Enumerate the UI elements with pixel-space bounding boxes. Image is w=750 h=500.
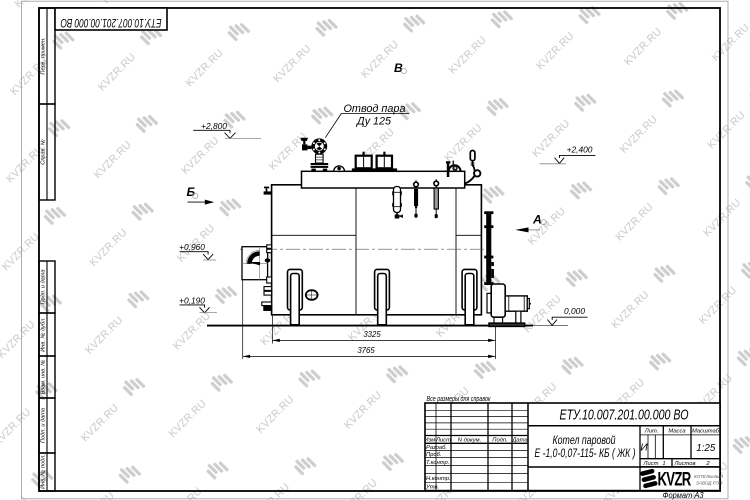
svg-text:Е -1,0-0,07-115- КБ ( ЖК ): Е -1,0-0,07-115- КБ ( ЖК ): [535, 446, 636, 460]
svg-text:Справ. №: Справ. №: [41, 139, 47, 164]
svg-text:В: В: [394, 61, 403, 75]
svg-text:Лист: Лист: [435, 437, 451, 443]
svg-text:N докум.: N докум.: [458, 437, 481, 443]
svg-text:Изм.: Изм.: [424, 437, 436, 443]
svg-text:Подп. и дата: Подп. и дата: [41, 408, 47, 443]
svg-text:KVZR: KVZR: [658, 470, 692, 491]
svg-text:Подп. и дата: Подп. и дата: [41, 269, 47, 304]
svg-text:1:25: 1:25: [696, 443, 716, 454]
svg-text:3325: 3325: [363, 330, 381, 339]
svg-text:Лит.: Лит.: [644, 429, 659, 435]
svg-text:Утв.: Утв.: [425, 485, 439, 491]
svg-text:Масштаб: Масштаб: [692, 429, 720, 435]
svg-text:ЗАВОД РЭП: ЗАВОД РЭП: [696, 481, 723, 486]
svg-text:+2,800: +2,800: [201, 121, 227, 131]
svg-text:Инв. № подл.: Инв. № подл.: [41, 454, 47, 489]
svg-text:Б: Б: [187, 185, 196, 199]
svg-text:1: 1: [662, 461, 665, 467]
svg-text:ЕТУ.10.007.201.00.000 ВО: ЕТУ.10.007.201.00.000 ВО: [560, 407, 689, 424]
svg-text:Инв. № дубл.: Инв. № дубл.: [41, 317, 47, 351]
svg-text:0,000: 0,000: [564, 306, 585, 316]
svg-text:+2,400: +2,400: [567, 145, 593, 155]
svg-text:Разраб.: Разраб.: [426, 445, 447, 451]
svg-text:Ду 125: Ду 125: [356, 116, 392, 128]
svg-text:Листов: Листов: [673, 461, 695, 467]
svg-text:Лист: Лист: [643, 461, 659, 467]
svg-text:Дата: Дата: [511, 437, 528, 443]
svg-text:+0,190: +0,190: [179, 295, 205, 305]
svg-text:Проб.: Проб.: [426, 452, 442, 458]
svg-text:И: И: [640, 443, 648, 454]
svg-text:ЕТУ.10.007.201.00.000 ВО: ЕТУ.10.007.201.00.000 ВО: [60, 16, 161, 28]
svg-text:Подп.: Подп.: [492, 437, 507, 443]
svg-text:Котел паровой: Котел паровой: [553, 433, 616, 447]
svg-text:Масса: Масса: [668, 429, 686, 435]
svg-text:Перв. примен.: Перв. примен.: [41, 37, 47, 74]
svg-text:Все размеры для справок: Все размеры для справок: [427, 394, 491, 403]
svg-text:Формат А3: Формат А3: [663, 491, 705, 500]
svg-text:А: А: [532, 212, 542, 226]
svg-text:3765: 3765: [357, 346, 375, 355]
svg-text:+0,960: +0,960: [179, 242, 205, 252]
svg-text:Взам. инв. №: Взам. инв. №: [41, 360, 47, 395]
svg-text:Н.контр.: Н.контр.: [426, 476, 451, 482]
svg-text:Т.контр.: Т.контр.: [426, 460, 449, 466]
svg-text:КОТЕЛЬНЫЙ: КОТЕЛЬНЫЙ: [694, 472, 724, 479]
